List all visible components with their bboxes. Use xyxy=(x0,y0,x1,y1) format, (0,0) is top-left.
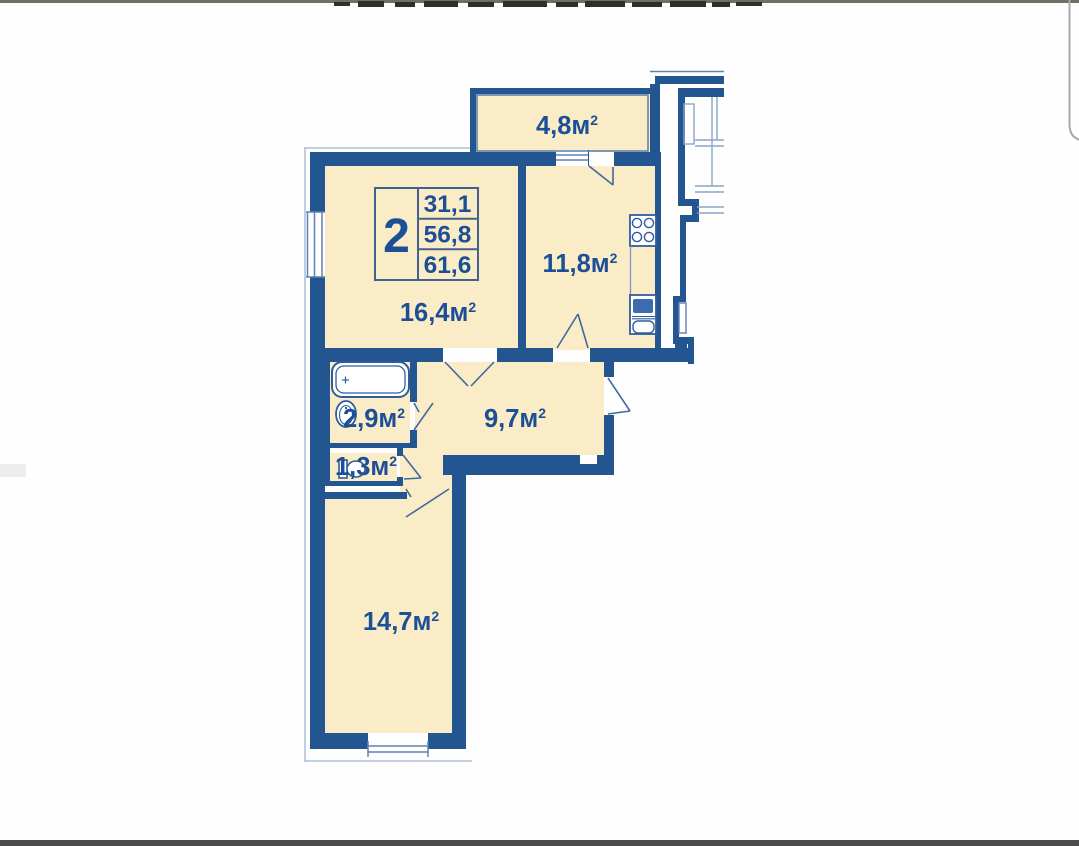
bedroom-window-icon xyxy=(368,741,428,757)
entrance-door-icon xyxy=(608,378,630,414)
hallway-area-label: 9,7м2 xyxy=(484,405,546,433)
legend-area-apartment: 56,8 xyxy=(424,222,472,249)
wall-segment xyxy=(675,338,687,348)
wall-segment xyxy=(310,277,325,749)
wall-segment xyxy=(325,492,407,499)
wall-segment xyxy=(518,166,526,348)
kitchen-sink-icon xyxy=(630,295,656,334)
balcony-wall xyxy=(470,88,660,94)
wall-segment xyxy=(452,475,466,749)
wall-segment xyxy=(680,222,686,301)
left-edge-artifact xyxy=(0,464,26,477)
bathtub-icon xyxy=(332,362,409,397)
wall-segment xyxy=(497,348,553,362)
wall-segment xyxy=(590,348,694,362)
wall-segment xyxy=(604,415,614,457)
bathroom-area-label: 2,9м2 xyxy=(343,405,405,433)
right-panel-border xyxy=(1070,0,1079,141)
wall-segment xyxy=(680,215,699,222)
legend-area-living: 31,1 xyxy=(424,191,472,218)
bottom-edge-strip xyxy=(0,840,1079,846)
wall-segment xyxy=(678,88,724,97)
neighbor-radiator-icon xyxy=(684,104,694,144)
stove-icon xyxy=(630,215,656,246)
apartment-type-label: 2 xyxy=(383,210,410,263)
wall-segment xyxy=(325,443,417,448)
floor-plan-svg: 2 31,1 56,8 61,6 4,8м2 11,8м2 16,4м2 2,9… xyxy=(0,0,1079,846)
kitchen-area-label: 11,8м2 xyxy=(543,250,618,278)
wall-segment xyxy=(428,733,466,749)
balcony-area-label: 4,8м2 xyxy=(536,112,598,140)
legend-box: 2 31,1 56,8 61,6 xyxy=(375,188,478,280)
wall-segment xyxy=(655,76,724,84)
wall-segment xyxy=(325,481,403,486)
bedroom-area-label: 14,7м2 xyxy=(363,608,440,636)
living-room-area-label: 16,4м2 xyxy=(400,299,477,327)
wall-notch xyxy=(580,455,597,464)
wc-area-label: 1,3м2 xyxy=(335,453,397,481)
balcony-wall xyxy=(470,88,476,152)
wall-segment xyxy=(325,356,417,361)
wall-segment xyxy=(673,302,679,342)
legend-area-total: 61,6 xyxy=(424,252,472,279)
wall-segment xyxy=(410,356,417,402)
wall-segment xyxy=(673,296,686,302)
wall-segment xyxy=(604,362,614,377)
wall-segment xyxy=(310,152,556,166)
wall-segment xyxy=(310,733,368,749)
living-room-window-icon xyxy=(306,212,325,277)
wall-segment xyxy=(325,356,330,448)
wall-segment xyxy=(397,448,403,456)
balcony-wall xyxy=(650,84,660,152)
wall-segment xyxy=(614,152,660,166)
wall-segment xyxy=(325,448,330,486)
floor-plan-screenshot: 2 31,1 56,8 61,6 4,8м2 11,8м2 16,4м2 2,9… xyxy=(0,0,1079,846)
neighbor-window-icon xyxy=(679,303,686,333)
balcony-window-icon xyxy=(556,150,588,166)
